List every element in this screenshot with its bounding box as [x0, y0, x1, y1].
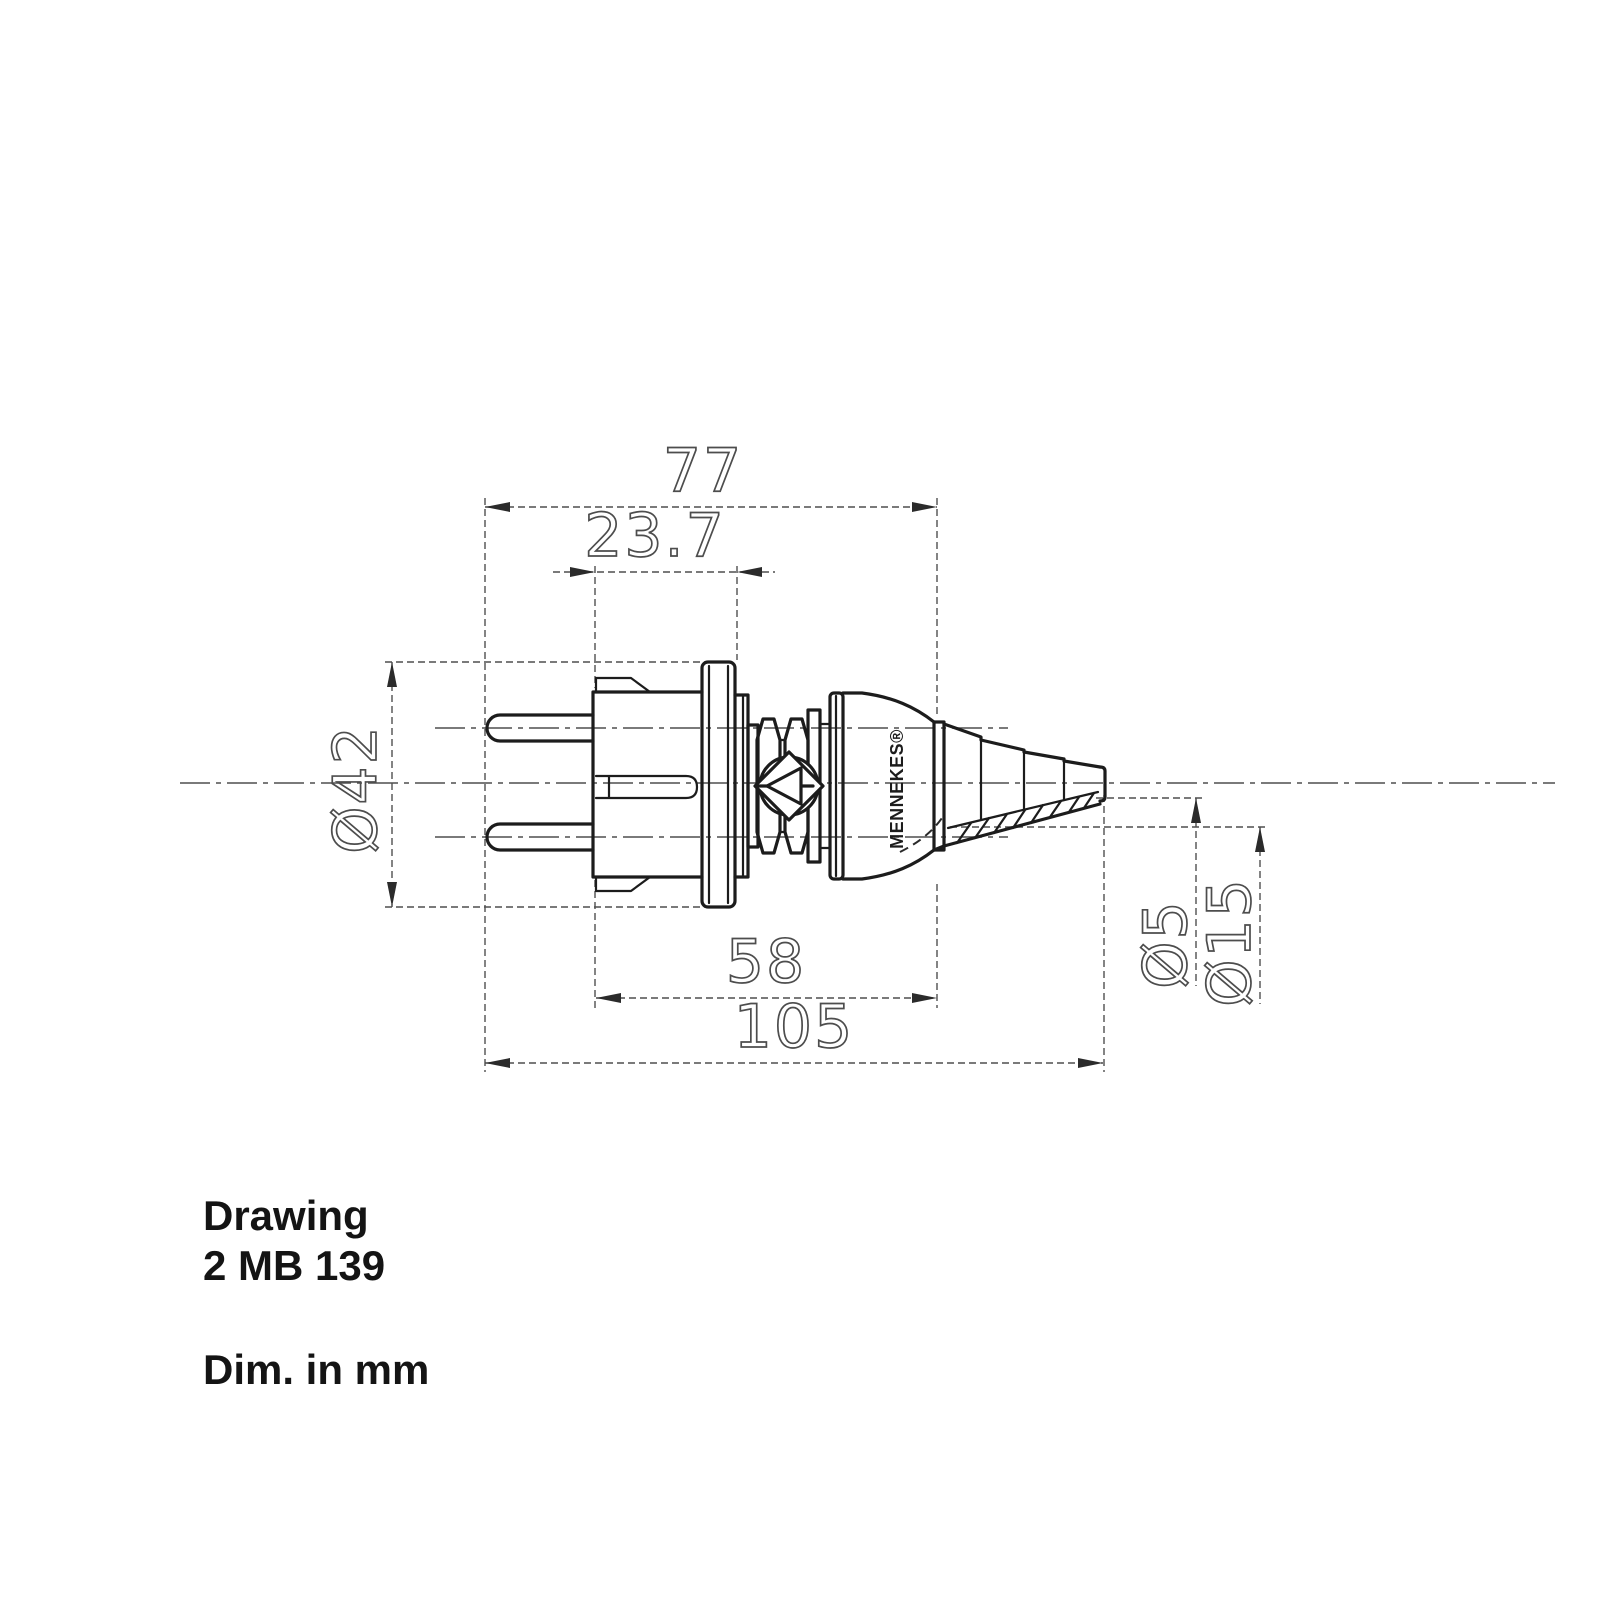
drawing-page: 77 23.7 Ø42 58 105 Ø5 Ø15 MENNEKES® Draw…: [0, 0, 1600, 1600]
drawing-title: Drawing: [203, 1192, 369, 1239]
collar-ring: [735, 695, 748, 877]
cable-grip-hatching: [957, 793, 1094, 843]
bell-bottom: [843, 850, 934, 879]
cone-tip: [1100, 767, 1105, 801]
top-notch: [596, 678, 650, 692]
brand-label: MENNEKES®: [887, 729, 907, 849]
dim-label-105: 105: [734, 992, 855, 1062]
bottom-notch: [596, 877, 650, 891]
dim-label-42: Ø42: [321, 724, 391, 854]
dim-label-5: Ø5: [1131, 899, 1201, 988]
technical-drawing: 77 23.7 Ø42 58 105 Ø5 Ø15 MENNEKES® Draw…: [0, 0, 1600, 1600]
dim-label-15: Ø15: [1195, 877, 1265, 1007]
units-note: Dim. in mm: [203, 1346, 429, 1393]
dim-label-23-7: 23.7: [584, 501, 726, 571]
flange: [702, 662, 735, 907]
title-block: Drawing 2 MB 139 Dim. in mm: [203, 1192, 429, 1393]
dimension-labels: 77 23.7 Ø42 58 105 Ø5 Ø15: [321, 436, 1265, 1062]
dim-label-77: 77: [663, 436, 743, 506]
earth-slot: [596, 776, 697, 798]
drawing-number: 2 MB 139: [203, 1242, 385, 1289]
dimension-lines: [392, 507, 1260, 1063]
cone-top-profile: [944, 724, 1100, 767]
screw-symbol: [755, 752, 823, 820]
dim-label-58: 58: [726, 927, 806, 997]
bell-top: [843, 693, 934, 722]
cone-base-ring: [934, 722, 944, 850]
